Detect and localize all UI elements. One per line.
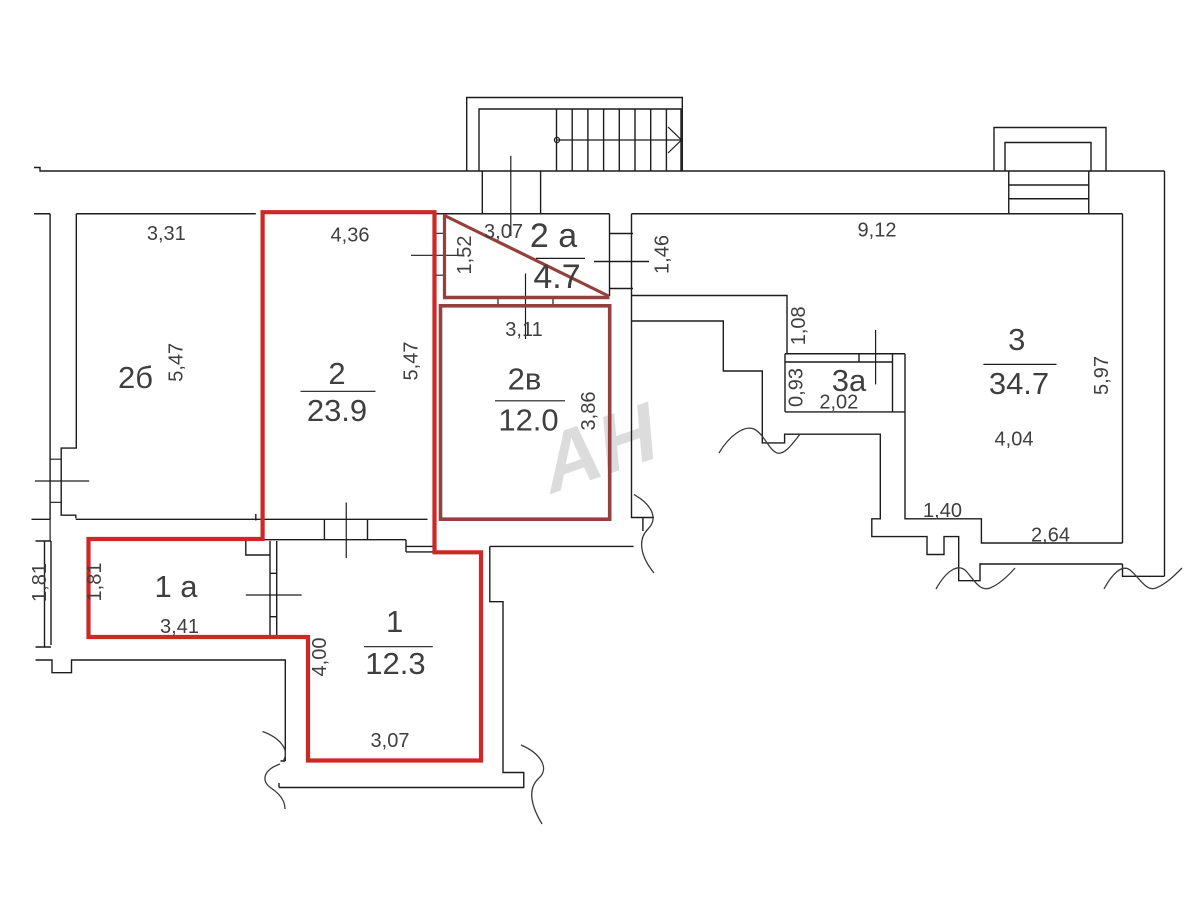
svg-text:3,07: 3,07 <box>371 730 410 752</box>
svg-text:1: 1 <box>386 604 403 639</box>
svg-text:3,07: 3,07 <box>484 221 523 243</box>
svg-text:3: 3 <box>1008 322 1025 357</box>
svg-text:4,00: 4,00 <box>309 638 331 677</box>
svg-text:2 а: 2 а <box>530 217 577 255</box>
svg-text:4,04: 4,04 <box>995 429 1034 451</box>
svg-text:0,93: 0,93 <box>786 368 808 407</box>
svg-text:5,47: 5,47 <box>401 342 423 381</box>
svg-text:3,86: 3,86 <box>578 392 600 431</box>
svg-text:1 а: 1 а <box>154 569 198 604</box>
svg-text:1,81: 1,81 <box>29 563 51 602</box>
svg-text:1,81: 1,81 <box>84 563 106 602</box>
svg-text:12.3: 12.3 <box>365 646 425 681</box>
svg-text:12.0: 12.0 <box>498 403 558 438</box>
svg-text:23.9: 23.9 <box>307 393 367 428</box>
svg-text:1,46: 1,46 <box>652 235 674 274</box>
svg-text:3,41: 3,41 <box>160 616 199 638</box>
svg-text:5,97: 5,97 <box>1091 356 1113 395</box>
svg-text:1,40: 1,40 <box>923 500 962 522</box>
svg-text:4.7: 4.7 <box>533 258 580 296</box>
svg-text:34.7: 34.7 <box>989 366 1049 401</box>
svg-text:3,11: 3,11 <box>505 319 542 341</box>
svg-text:2: 2 <box>328 356 345 391</box>
svg-text:2,02: 2,02 <box>819 392 858 414</box>
svg-text:3,31: 3,31 <box>147 223 186 245</box>
svg-text:2б: 2б <box>118 360 153 395</box>
svg-text:9,12: 9,12 <box>858 220 897 242</box>
svg-text:2,64: 2,64 <box>1031 525 1070 547</box>
svg-text:2в: 2в <box>508 362 542 397</box>
svg-text:4,36: 4,36 <box>331 225 370 247</box>
svg-text:АН: АН <box>541 383 660 513</box>
svg-text:5,47: 5,47 <box>166 343 188 382</box>
svg-text:1,52: 1,52 <box>454 236 476 275</box>
svg-text:1,08: 1,08 <box>788 306 810 345</box>
